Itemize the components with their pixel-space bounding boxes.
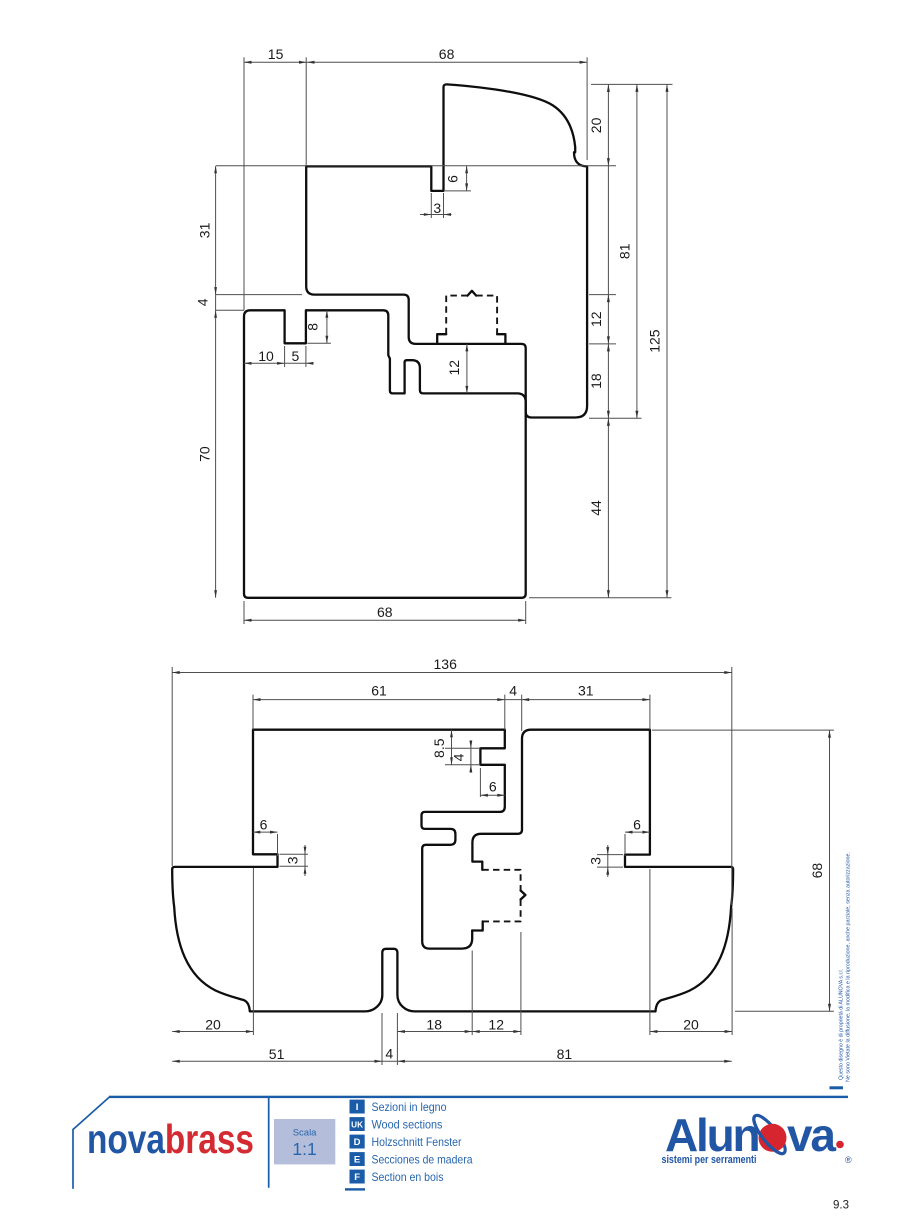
svg-text:18: 18 [588,373,604,389]
svg-text:4: 4 [509,683,517,699]
svg-text:®: ® [845,1155,852,1165]
svg-text:12: 12 [446,360,462,376]
svg-text:68: 68 [439,46,455,62]
svg-text:20: 20 [683,1016,699,1032]
svg-text:Section en bois: Section en bois [372,1170,444,1184]
svg-text:Scala: Scala [293,1128,317,1139]
svg-text:Holzschnitt Fenster: Holzschnitt Fenster [372,1135,462,1149]
svg-text:81: 81 [557,1046,573,1062]
svg-text:70: 70 [196,446,212,462]
svg-text:E: E [354,1155,360,1166]
svg-text:3: 3 [285,856,301,864]
svg-text:3: 3 [587,857,603,865]
svg-text:novabrass: novabrass [87,1116,254,1162]
svg-text:F: F [354,1172,360,1183]
svg-text:Ne sono Vietate la diffusione,: Ne sono Vietate la diffusione, la modifi… [846,852,852,1082]
svg-text:4: 4 [194,298,210,306]
svg-text:18: 18 [426,1016,442,1032]
svg-text:12: 12 [488,1016,504,1032]
svg-text:4: 4 [385,1045,393,1061]
svg-text:61: 61 [371,683,387,699]
svg-text:15: 15 [268,46,284,62]
svg-text:8: 8 [304,323,320,331]
svg-text:31: 31 [196,222,212,238]
svg-text:I: I [356,1102,359,1113]
svg-text:68: 68 [377,604,393,620]
svg-text:6: 6 [633,816,641,832]
svg-text:Secciones de madera: Secciones de madera [372,1152,473,1166]
svg-text:10: 10 [258,348,274,364]
svg-text:1:1: 1:1 [292,1139,316,1159]
svg-text:44: 44 [588,500,604,516]
svg-text:81: 81 [616,243,632,259]
svg-text:6: 6 [260,816,268,832]
svg-text:sistemi per serramenti: sistemi per serramenti [662,1154,757,1166]
svg-text:125: 125 [646,329,662,353]
svg-text:4: 4 [451,753,467,761]
svg-text:va: va [787,1109,836,1161]
svg-text:9.3: 9.3 [833,1200,849,1212]
svg-text:5: 5 [292,348,300,364]
svg-text:Wood sections: Wood sections [372,1117,443,1131]
svg-text:UK: UK [351,1121,363,1130]
svg-text:31: 31 [578,683,594,699]
svg-text:8.5: 8.5 [431,738,447,758]
svg-text:12: 12 [588,311,604,327]
svg-text:Sezioni in legno: Sezioni in legno [372,1100,447,1114]
svg-text:51: 51 [269,1046,285,1062]
svg-text:20: 20 [588,117,604,133]
svg-text:6: 6 [489,779,497,795]
svg-text:Questo disegno è di proprietà: Questo disegno è di proprietà di ALUNOVA… [839,969,845,1080]
svg-text:136: 136 [434,656,458,672]
svg-text:D: D [354,1137,361,1148]
svg-text:6: 6 [445,175,461,183]
svg-text:3: 3 [433,200,441,216]
svg-text:20: 20 [205,1016,221,1032]
svg-text:68: 68 [809,863,825,879]
